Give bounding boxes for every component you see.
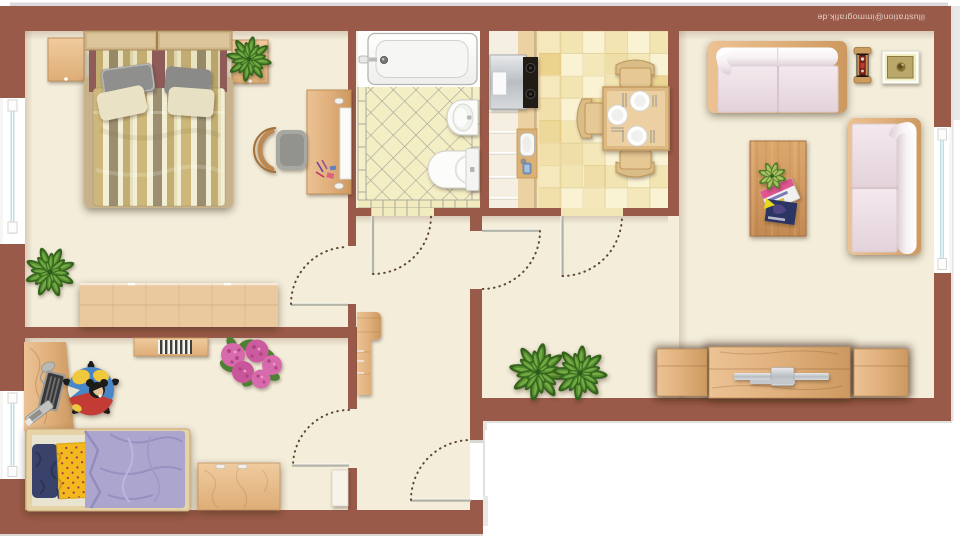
svg-text:illustration@immografik.de: illustration@immografik.de [817,13,925,23]
